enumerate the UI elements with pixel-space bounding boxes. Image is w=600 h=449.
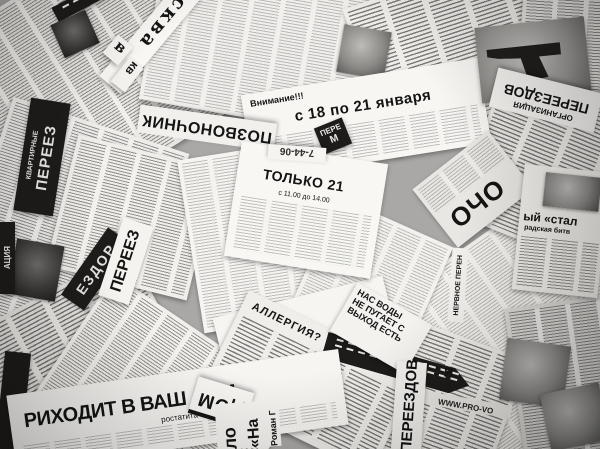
tolko21-ad: ТОЛЬКО 21 с 11.00 до 14.00 <box>224 141 388 279</box>
tolko21-text: ТОЛЬКО 21 <box>262 167 345 194</box>
roman-text: Роман Г <box>267 410 279 446</box>
article-photo <box>543 172 600 212</box>
aciya-text: АЦИЯ <box>3 246 12 269</box>
attention-text: Внимание!!! <box>250 92 305 109</box>
newsprint-texture <box>516 236 599 294</box>
na-text: «На <box>244 418 264 449</box>
photo-fragment <box>540 382 600 449</box>
pereezdov-vertical: ПЕРЕЕЗДОВ <box>391 361 427 449</box>
ya-text: Я <box>443 365 454 379</box>
phone-text: 7-44-06 <box>280 145 315 158</box>
photo-fragment <box>8 238 65 301</box>
roman-fragment: ло «На Роман Г <box>214 400 281 449</box>
aciya-label: АЦИЯ <box>0 222 15 294</box>
lo-text: ло <box>219 426 241 449</box>
newsprint-texture <box>233 196 372 270</box>
newspaper-collage-photo: осква в кв КВАРТИРНЫЕ ПЕРЕЕЗ АЦИЯ Вниман… <box>0 0 600 449</box>
pereezdov-vertical-text: ПЕРЕЕЗДОВ <box>397 359 420 449</box>
photo-fragment <box>336 24 392 80</box>
stalingrad-article: ый «стал радская битв <box>512 164 600 298</box>
nervnoe-text: НЕРВНОЕ ПЕРЕН <box>452 255 463 316</box>
